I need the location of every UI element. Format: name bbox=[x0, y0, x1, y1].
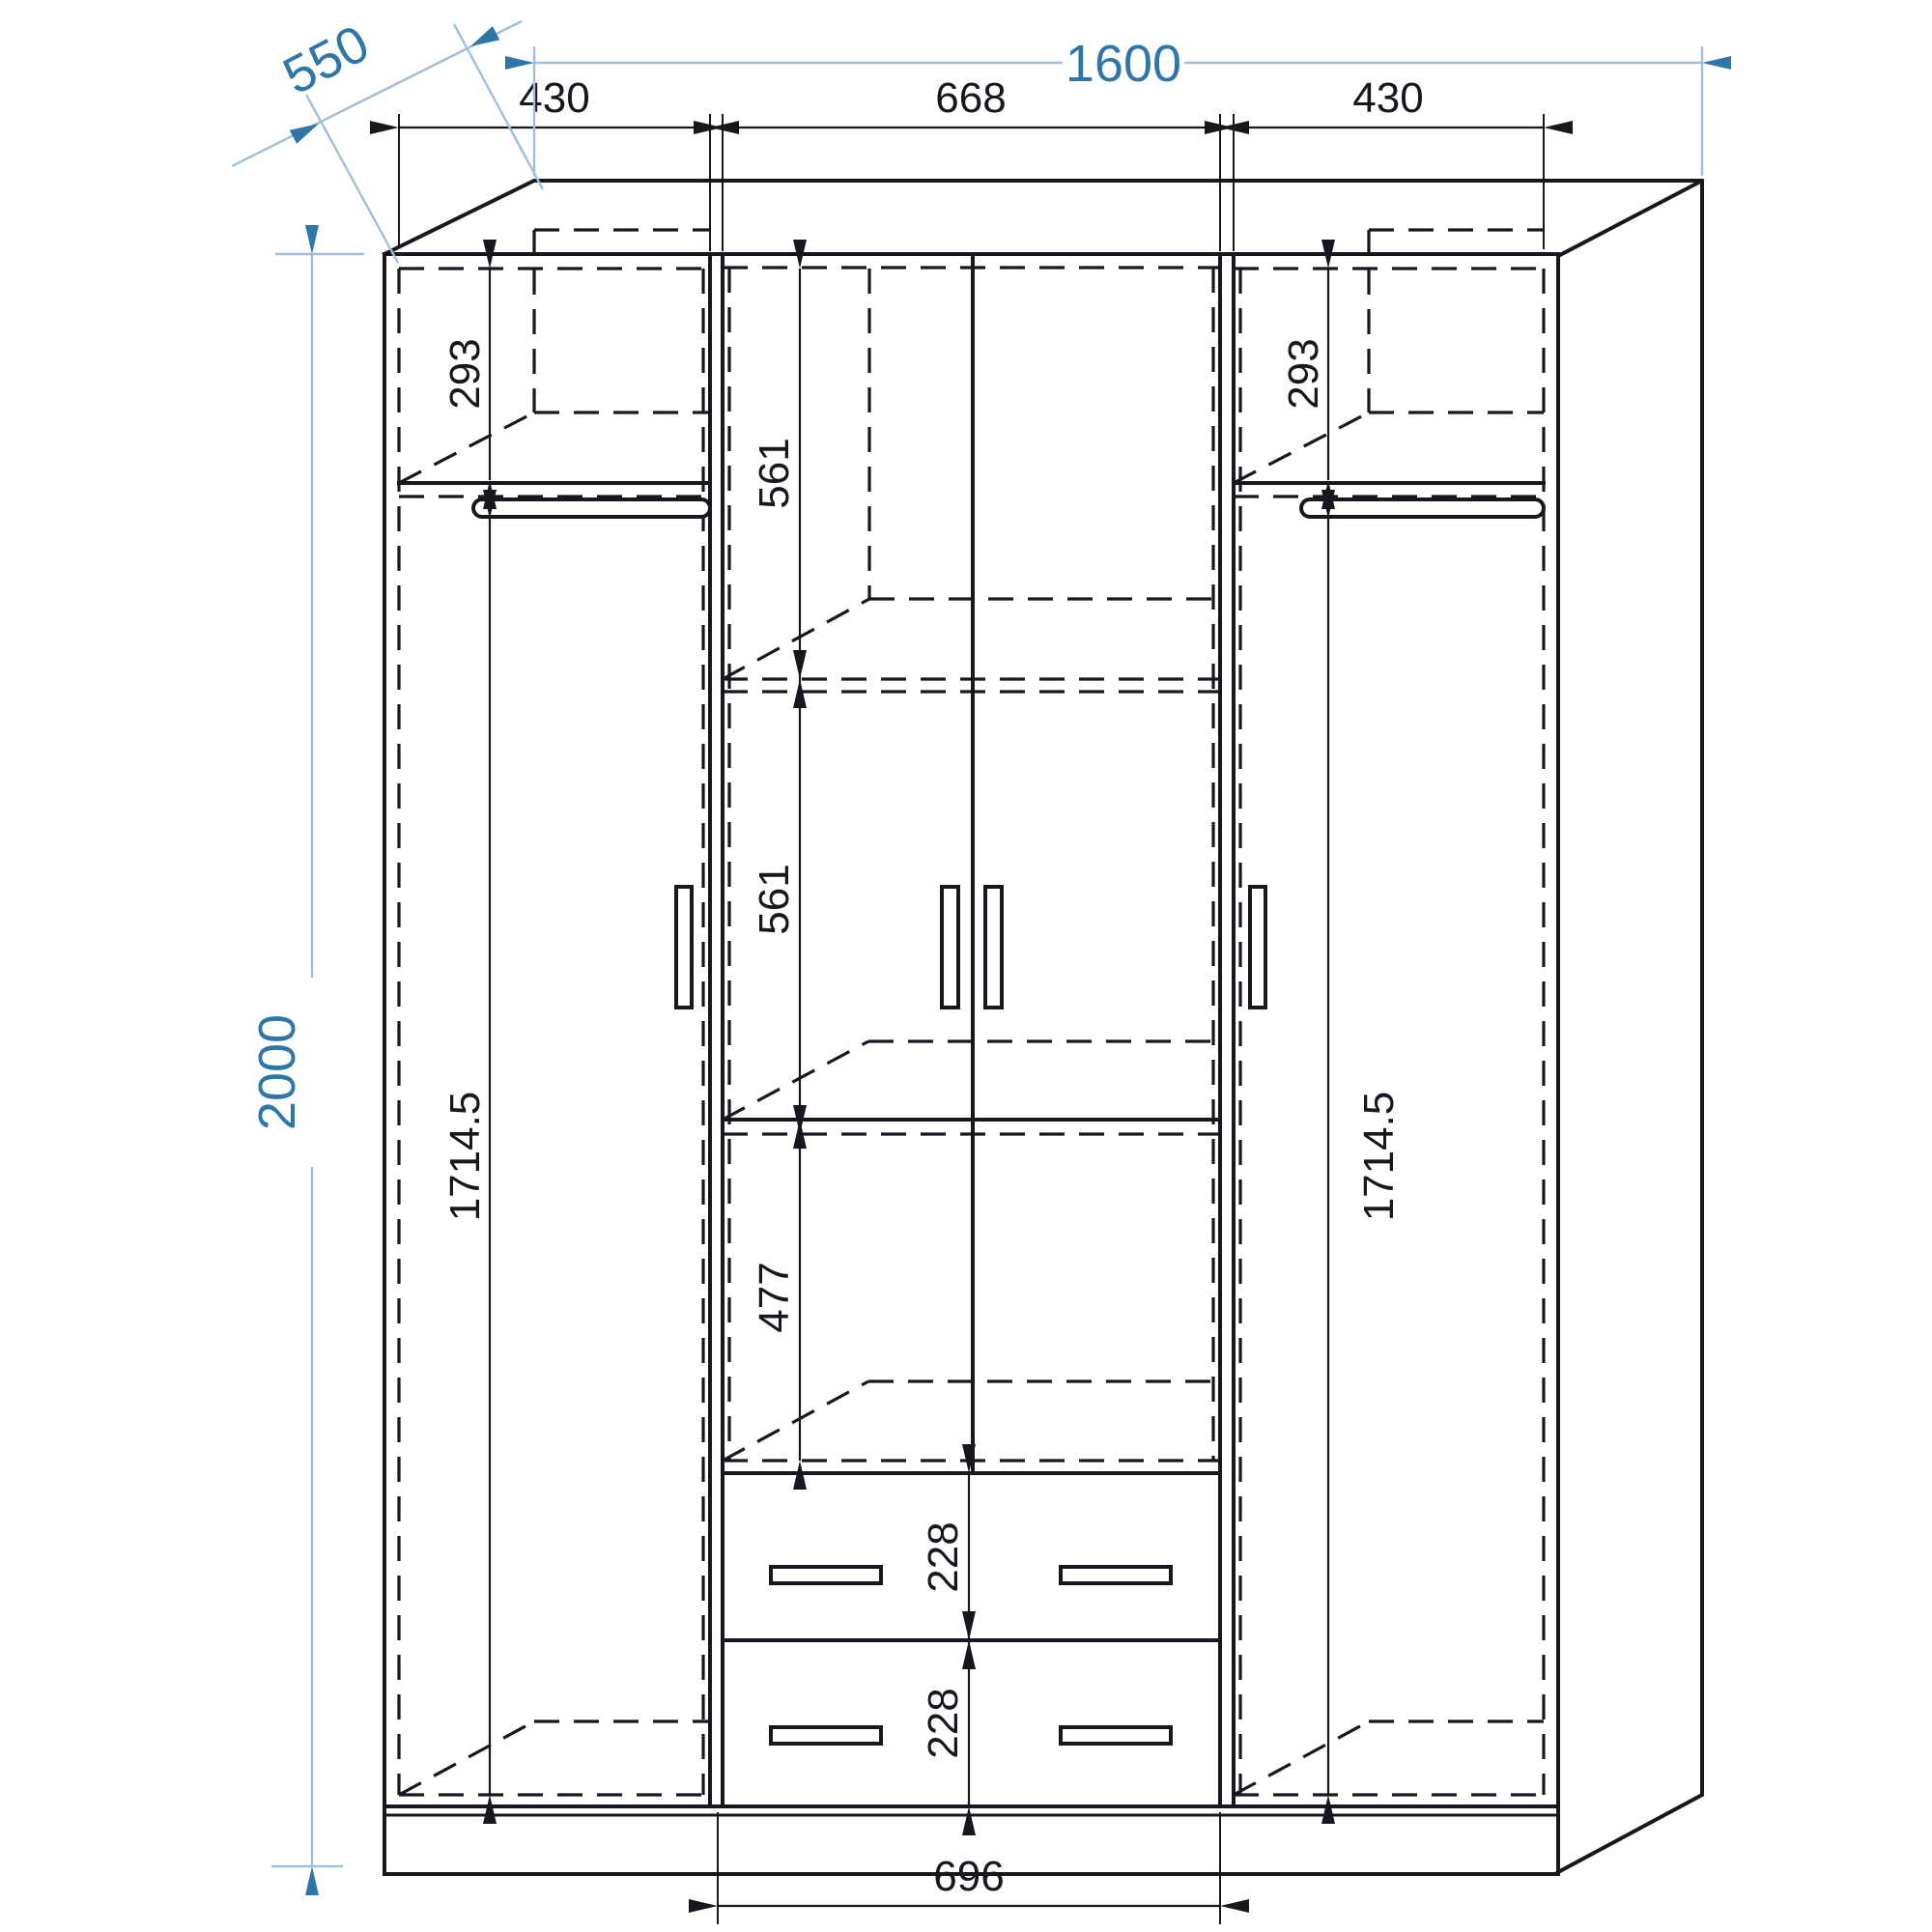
drawer-handle-bottom-left bbox=[771, 1727, 881, 1744]
overall-depth-dimension: 550 bbox=[232, 14, 543, 263]
dim-right-hanging-height: 1714.5 bbox=[1355, 1092, 1403, 1222]
dim-center-section-width: 668 bbox=[935, 74, 1006, 122]
drawer-handle-top-right bbox=[1061, 1567, 1171, 1583]
center-section-dimensions: 561 561 477 bbox=[751, 269, 800, 1461]
right-door-handle bbox=[1250, 887, 1265, 1008]
depth-arrow-right bbox=[470, 26, 499, 46]
wardrobe-carcass bbox=[384, 181, 1702, 1874]
section-width-dimensions: 430 668 430 bbox=[399, 74, 1544, 251]
center-left-door-handle bbox=[942, 887, 958, 1008]
center-right-door-handle bbox=[985, 887, 1002, 1008]
dim-left-section-width: 430 bbox=[519, 74, 589, 122]
dim-center-middle-compartment: 561 bbox=[751, 864, 798, 934]
drawer-handle-bottom-right bbox=[1061, 1727, 1171, 1744]
drawer-handle-top-left bbox=[771, 1567, 881, 1583]
dim-center-lower-compartment: 477 bbox=[751, 1262, 798, 1332]
dim-left-hanging-height: 1714.5 bbox=[441, 1092, 489, 1222]
dim-right-top-compartment: 293 bbox=[1280, 338, 1327, 409]
overall-height-dimension: 2000 bbox=[248, 254, 364, 1866]
dim-lower-drawer-height: 228 bbox=[920, 1688, 967, 1758]
left-section-interior bbox=[399, 230, 710, 1795]
drawer-dimensions: 228 228 696 bbox=[718, 1473, 1220, 1924]
right-section-interior bbox=[1234, 230, 1544, 1795]
right-hanging-rod bbox=[1301, 499, 1544, 517]
depth-arrow-left bbox=[290, 124, 319, 144]
dim-overall-width: 1600 bbox=[1065, 35, 1181, 93]
dim-center-upper-compartment: 561 bbox=[751, 438, 798, 508]
left-door-handle bbox=[676, 887, 692, 1008]
drawer-section bbox=[723, 1473, 1220, 1744]
dim-left-top-compartment: 293 bbox=[441, 338, 489, 409]
drawing-canvas: 430 668 430 293 1714.5 561 561 477 228 2… bbox=[0, 0, 1932, 1932]
dim-drawer-section-width: 696 bbox=[933, 1853, 1004, 1900]
left-hanging-rod bbox=[473, 499, 710, 517]
dim-right-section-width: 430 bbox=[1352, 74, 1423, 122]
dim-overall-depth: 550 bbox=[274, 14, 379, 106]
dim-overall-height: 2000 bbox=[248, 1014, 306, 1130]
wardrobe-dimension-drawing: 430 668 430 293 1714.5 561 561 477 228 2… bbox=[0, 0, 1932, 1932]
dim-upper-drawer-height: 228 bbox=[920, 1521, 967, 1592]
